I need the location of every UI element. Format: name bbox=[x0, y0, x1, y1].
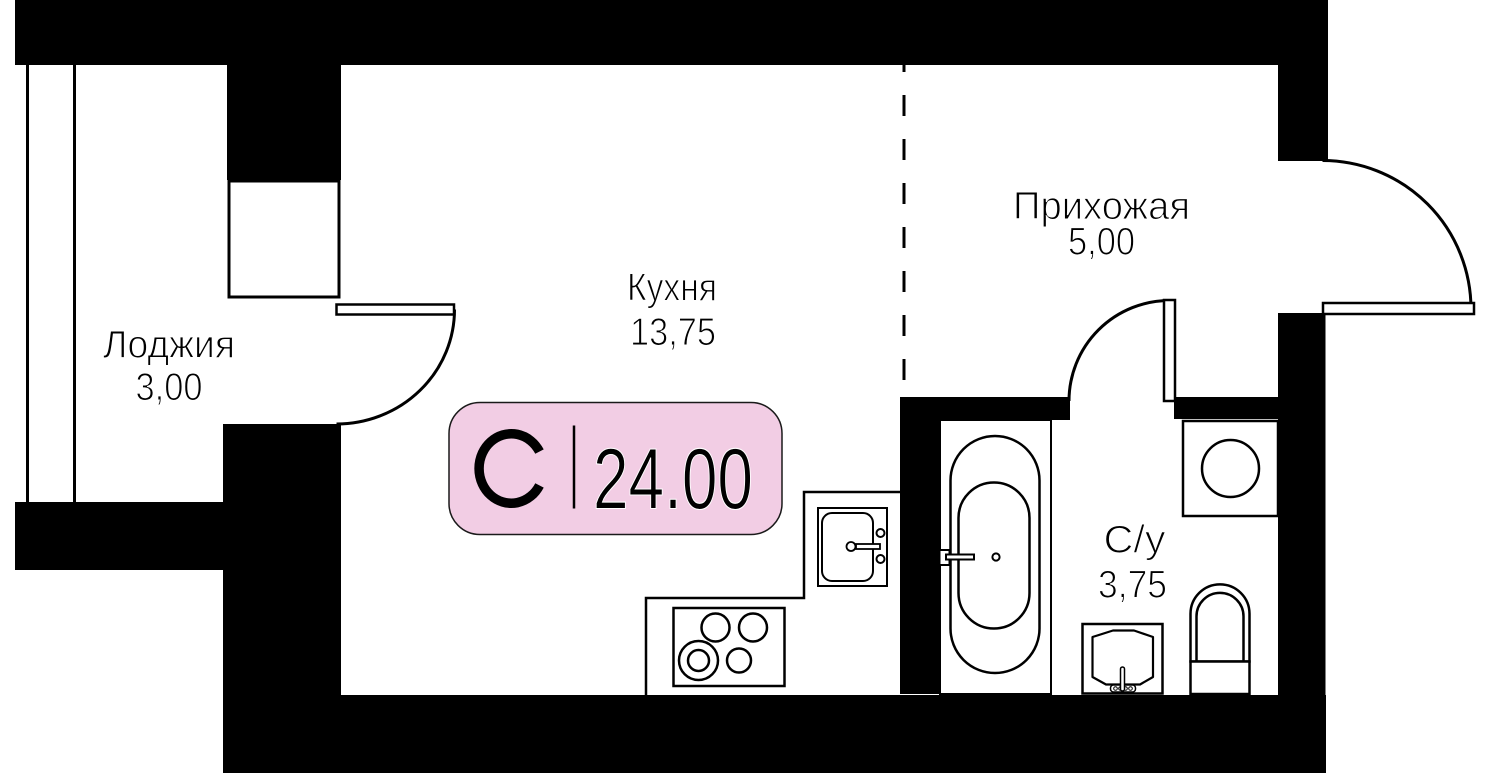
svg-text:3,00: 3,00 bbox=[136, 366, 203, 409]
svg-text:24.00: 24.00 bbox=[593, 432, 753, 528]
svg-text:5,00: 5,00 bbox=[1068, 221, 1135, 264]
svg-text:Кухня: Кухня bbox=[627, 267, 717, 310]
svg-text:Лоджия: Лоджия bbox=[103, 324, 235, 367]
svg-text:3,75: 3,75 bbox=[1098, 564, 1167, 607]
svg-text:13,75: 13,75 bbox=[630, 311, 716, 354]
svg-text:С/у: С/у bbox=[1104, 519, 1167, 562]
